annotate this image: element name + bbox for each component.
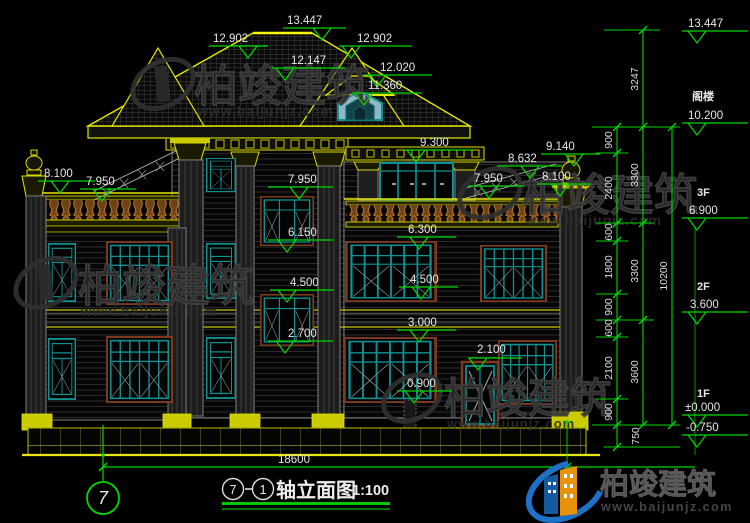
floor-label-2f: 2F bbox=[697, 281, 710, 293]
porch-pier bbox=[404, 400, 416, 428]
level-value: 3.600 bbox=[690, 299, 719, 311]
level-label: 9.300 bbox=[420, 137, 449, 149]
level-label: 2.700 bbox=[288, 328, 317, 340]
left-wing-balustrade bbox=[28, 193, 188, 232]
window-2f-far-right bbox=[481, 246, 547, 302]
level-label: 8.100 bbox=[542, 171, 571, 183]
floor-label-1f: 1F bbox=[697, 388, 710, 400]
logo-building-blue-icon bbox=[544, 474, 558, 514]
svg-text:1800: 1800 bbox=[603, 255, 615, 279]
level-label: 4.500 bbox=[290, 277, 319, 289]
title-axis-end: 1 bbox=[259, 482, 266, 497]
level-label: 7.950 bbox=[86, 176, 115, 188]
svg-text:10200: 10200 bbox=[658, 261, 670, 290]
level-label: 9.140 bbox=[546, 141, 575, 153]
roof-fascia bbox=[88, 126, 470, 138]
window-1f-left-wide bbox=[107, 337, 173, 403]
level-label: 12.020 bbox=[380, 62, 415, 74]
window-1f-flank bbox=[207, 338, 236, 398]
logo-building-orange-icon bbox=[560, 466, 577, 516]
drawing-title: 7 1 轴立面图 1:100 bbox=[222, 478, 390, 509]
level-label: 7.950 bbox=[474, 173, 503, 185]
floor-label-3f: 3F bbox=[697, 187, 710, 199]
title-underline-thick bbox=[222, 502, 390, 505]
level-label: 12.902 bbox=[357, 33, 392, 45]
svg-text:2100: 2100 bbox=[603, 356, 615, 380]
dimension-values: 900 2400 600 1800 900 600 2100 900 750 3… bbox=[603, 67, 670, 445]
logo-website: www.baijunjz.com bbox=[600, 500, 733, 514]
svg-text:750: 750 bbox=[630, 427, 642, 445]
level-label: 8.632 bbox=[508, 153, 537, 165]
level-value: -0.750 bbox=[686, 422, 719, 434]
cad-elevation-drawing: 柏竣建筑 www.baijunjz.com 柏竣建筑 www.baijunjz.… bbox=[0, 0, 750, 523]
svg-text:2400: 2400 bbox=[603, 176, 615, 200]
svg-text:3300: 3300 bbox=[629, 163, 641, 187]
watermark-website: www.baijunjz.com bbox=[196, 103, 334, 119]
level-value: 6.900 bbox=[689, 205, 718, 217]
level-label: 3.000 bbox=[408, 317, 437, 329]
window-2f-right-wide bbox=[346, 242, 436, 302]
window-attic-flank bbox=[207, 159, 236, 192]
level-value: 10.200 bbox=[688, 110, 723, 122]
watermark-website: www.baijunjz.com bbox=[80, 303, 218, 319]
title-text: 轴立面图 bbox=[276, 478, 356, 502]
left-sloped-railing bbox=[94, 147, 184, 200]
level-label: 8.100 bbox=[44, 168, 73, 180]
level-value: ±0.000 bbox=[685, 402, 720, 414]
svg-text:3600: 3600 bbox=[629, 360, 641, 384]
axis-number: 7 bbox=[98, 488, 109, 508]
level-value: 13.447 bbox=[688, 18, 723, 30]
company-logo: 柏竣建筑 www.baijunjz.com bbox=[519, 450, 733, 523]
watermark-company: 柏竣建筑 bbox=[444, 375, 612, 422]
total-width-dim: 18600 bbox=[278, 454, 310, 466]
svg-text:900: 900 bbox=[603, 131, 615, 149]
level-label: 12.147 bbox=[291, 55, 326, 67]
svg-text:3300: 3300 bbox=[629, 259, 641, 283]
title-axis-start: 7 bbox=[229, 482, 236, 497]
level-label: 4.500 bbox=[410, 274, 439, 286]
level-label: 7.950 bbox=[288, 174, 317, 186]
watermark-website: www.baijunjz.com bbox=[446, 416, 575, 431]
right-level-column: 13.447 阁楼 10.200 3F 6.900 2F 3.600 1F ±0… bbox=[682, 18, 748, 447]
level-label: 0.900 bbox=[407, 378, 436, 390]
window-1f-left-narrow bbox=[49, 339, 76, 399]
level-label: 11.360 bbox=[368, 80, 402, 92]
drawing-canvas: 柏竣建筑 www.baijunjz.com 柏竣建筑 www.baijunjz.… bbox=[0, 0, 750, 523]
svg-text:600: 600 bbox=[603, 319, 615, 337]
level-label: 2.100 bbox=[477, 344, 506, 356]
level-label: 12.902 bbox=[213, 33, 248, 45]
svg-text:600: 600 bbox=[603, 223, 615, 241]
right-wing-cornice bbox=[346, 147, 484, 160]
plinth bbox=[22, 428, 600, 455]
level-label: 6.150 bbox=[288, 227, 317, 239]
level-label: 6.300 bbox=[408, 224, 437, 236]
svg-text:3247: 3247 bbox=[629, 67, 641, 91]
svg-text:900: 900 bbox=[603, 298, 615, 316]
floor-label-attic: 阁楼 bbox=[692, 89, 714, 103]
title-scale: 1:100 bbox=[352, 483, 389, 499]
svg-text:900: 900 bbox=[603, 403, 615, 421]
logo-company-name: 柏竣建筑 bbox=[600, 467, 716, 501]
level-label: 13.447 bbox=[287, 15, 322, 27]
